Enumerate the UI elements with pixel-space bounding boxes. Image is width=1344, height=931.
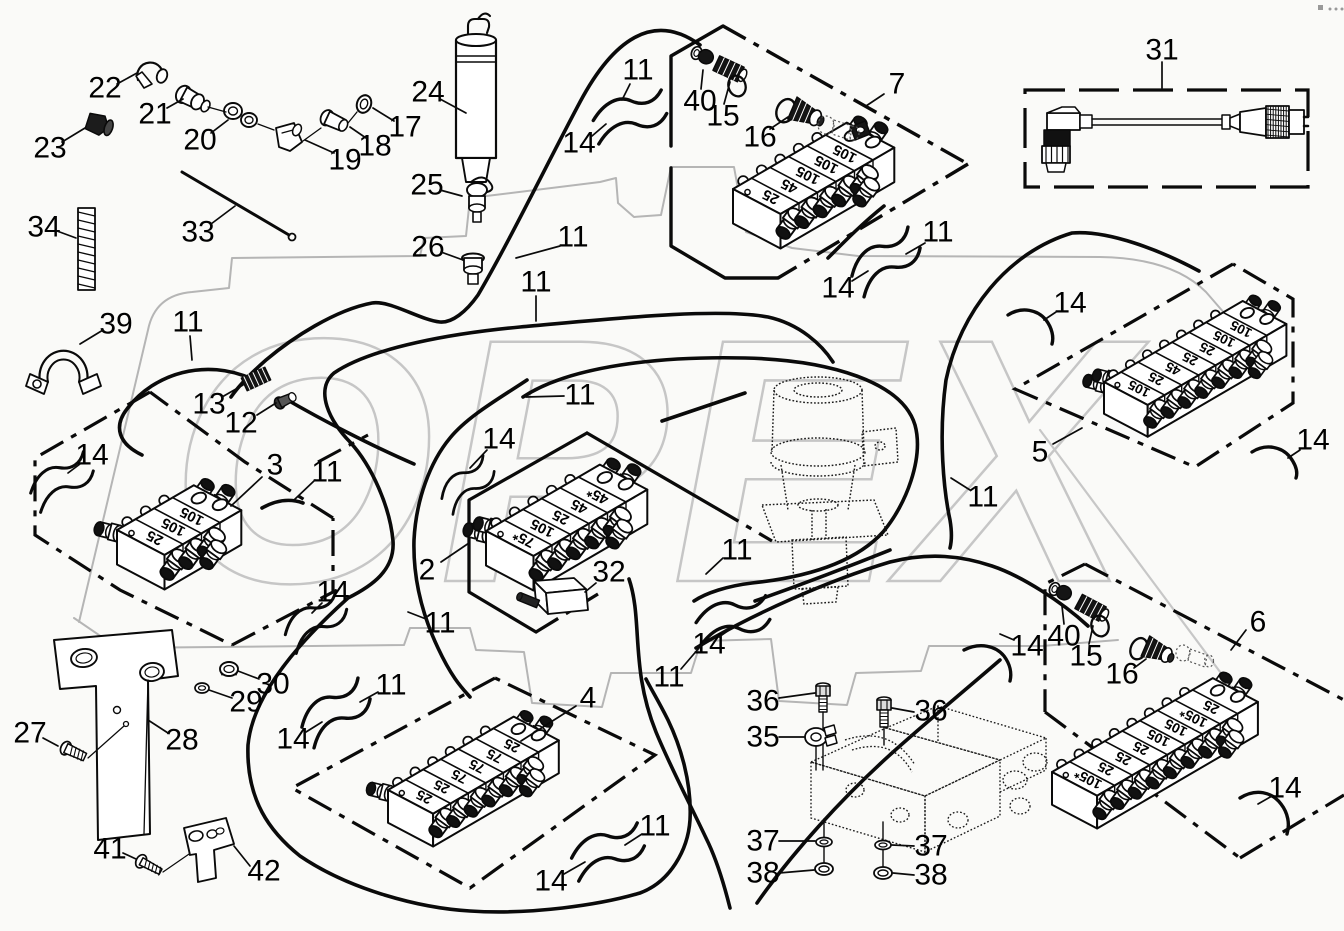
svg-text:11: 11 bbox=[557, 221, 588, 254]
svg-text:4: 4 bbox=[580, 682, 597, 715]
svg-text:13: 13 bbox=[192, 388, 225, 421]
svg-text:6: 6 bbox=[1250, 606, 1267, 639]
svg-text:27: 27 bbox=[13, 717, 46, 750]
svg-text:5: 5 bbox=[1032, 436, 1049, 469]
svg-text:2: 2 bbox=[419, 554, 436, 587]
svg-text:14: 14 bbox=[1010, 630, 1043, 663]
svg-text:11: 11 bbox=[967, 481, 998, 514]
svg-text:23: 23 bbox=[33, 132, 66, 165]
svg-text:11: 11 bbox=[721, 534, 752, 567]
svg-text:15: 15 bbox=[706, 100, 739, 133]
svg-text:14: 14 bbox=[75, 439, 108, 472]
svg-text:11: 11 bbox=[424, 607, 455, 640]
svg-text:32: 32 bbox=[592, 556, 625, 589]
svg-text:14: 14 bbox=[692, 628, 725, 661]
svg-text:14: 14 bbox=[821, 272, 854, 305]
svg-text:11: 11 bbox=[375, 669, 406, 702]
svg-text:14: 14 bbox=[1268, 772, 1301, 805]
svg-text:11: 11 bbox=[172, 306, 203, 339]
svg-text:36: 36 bbox=[914, 695, 947, 728]
svg-text:11: 11 bbox=[564, 379, 595, 412]
svg-text:36: 36 bbox=[746, 685, 779, 718]
svg-text:11: 11 bbox=[922, 216, 953, 249]
svg-text:11: 11 bbox=[311, 456, 342, 489]
svg-text:20: 20 bbox=[183, 124, 216, 157]
svg-text:11: 11 bbox=[622, 54, 653, 87]
svg-text:14: 14 bbox=[534, 865, 567, 898]
svg-text:18: 18 bbox=[358, 130, 391, 163]
svg-text:26: 26 bbox=[411, 231, 444, 264]
svg-text:11: 11 bbox=[520, 266, 551, 299]
svg-text:16: 16 bbox=[743, 121, 776, 154]
svg-text:11: 11 bbox=[639, 810, 670, 843]
svg-text:33: 33 bbox=[181, 216, 214, 249]
svg-text:3: 3 bbox=[267, 449, 284, 482]
svg-text:15: 15 bbox=[1069, 640, 1102, 673]
svg-text:11: 11 bbox=[653, 661, 684, 694]
svg-text:28: 28 bbox=[165, 724, 198, 757]
svg-text:38: 38 bbox=[914, 859, 947, 892]
svg-text:7: 7 bbox=[889, 68, 906, 101]
svg-text:22: 22 bbox=[88, 72, 121, 105]
svg-text:35: 35 bbox=[746, 721, 779, 754]
svg-text:25: 25 bbox=[410, 169, 443, 202]
svg-text:14: 14 bbox=[1053, 287, 1086, 320]
svg-text:12: 12 bbox=[224, 407, 257, 440]
svg-text:17: 17 bbox=[388, 111, 421, 144]
svg-text:37: 37 bbox=[746, 825, 779, 858]
svg-text:14: 14 bbox=[562, 127, 595, 160]
svg-text:14: 14 bbox=[1296, 424, 1329, 457]
svg-text:34: 34 bbox=[27, 211, 60, 244]
svg-text:14: 14 bbox=[276, 723, 309, 756]
svg-text:16: 16 bbox=[1105, 658, 1138, 691]
svg-text:24: 24 bbox=[411, 76, 444, 109]
svg-text:42: 42 bbox=[247, 855, 280, 888]
svg-text:30: 30 bbox=[256, 668, 289, 701]
svg-text:19: 19 bbox=[328, 144, 361, 177]
svg-text:21: 21 bbox=[138, 98, 171, 131]
svg-text:38: 38 bbox=[746, 857, 779, 890]
svg-text:39: 39 bbox=[99, 308, 132, 341]
svg-text:41: 41 bbox=[93, 833, 126, 866]
